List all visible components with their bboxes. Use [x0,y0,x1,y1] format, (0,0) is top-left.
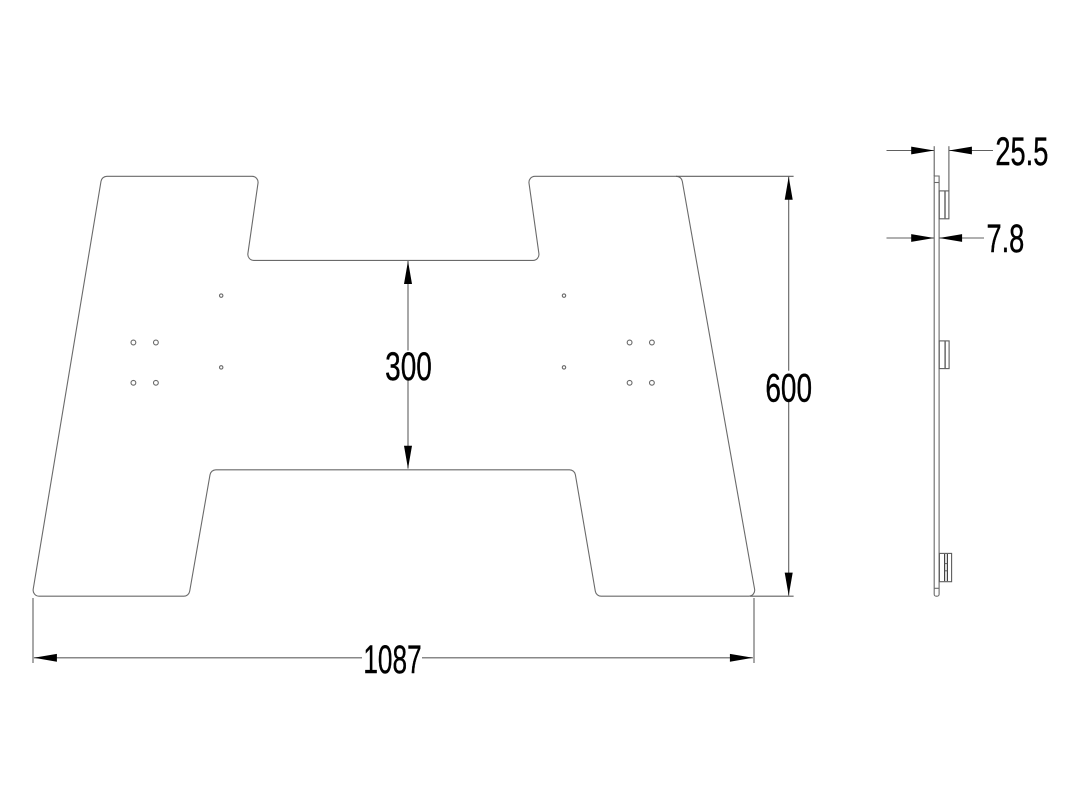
svg-text:7.8: 7.8 [987,217,1025,261]
svg-text:1087: 1087 [363,637,421,682]
svg-text:300: 300 [385,345,432,389]
svg-text:600: 600 [765,367,812,411]
svg-text:25.5: 25.5 [995,130,1048,174]
